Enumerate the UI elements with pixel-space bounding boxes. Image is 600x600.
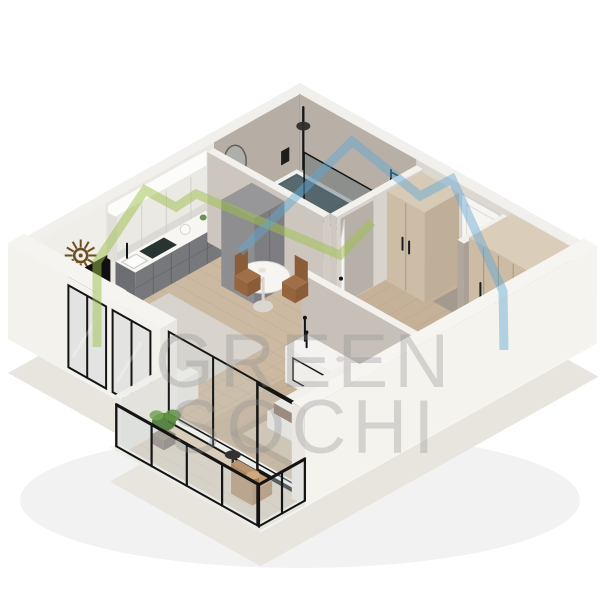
watermark-text-line2: SOCHI bbox=[170, 385, 441, 470]
floor-plan-render: GREEN SOCHI bbox=[0, 0, 600, 600]
apartment-3d-plan: GREEN SOCHI bbox=[0, 0, 600, 600]
